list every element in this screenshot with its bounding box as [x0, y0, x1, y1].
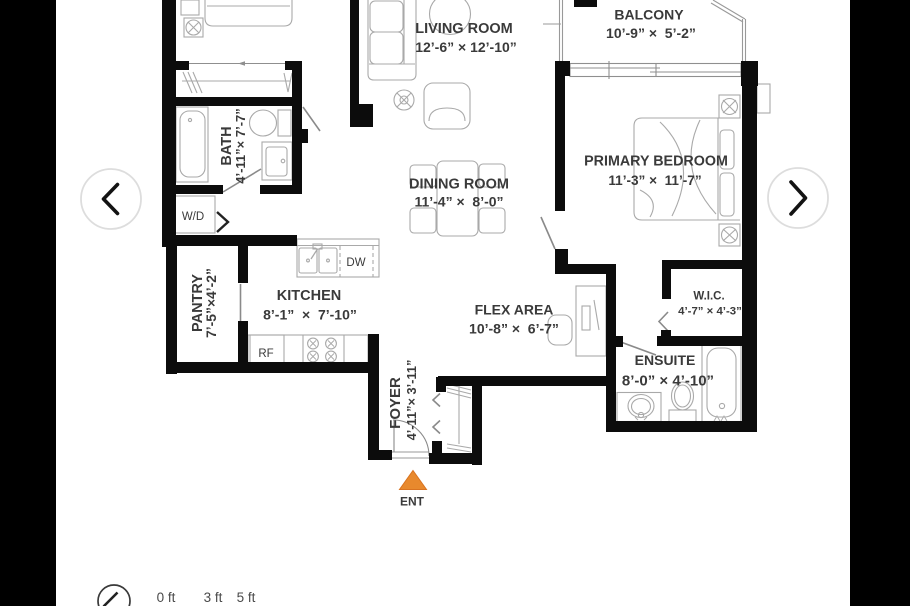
svg-text:FOYER: FOYER: [387, 377, 404, 429]
svg-text:7’-5”×4’-2”: 7’-5”×4’-2”: [203, 268, 219, 338]
svg-text:10’-8” × 6’-7”: 10’-8” × 6’-7”: [469, 321, 559, 337]
svg-text:ENT: ENT: [400, 495, 425, 509]
svg-text:DW: DW: [346, 257, 365, 269]
svg-text:BALCONY: BALCONY: [614, 7, 684, 23]
svg-text:4’-11”× 7’-7”: 4’-11”× 7’-7”: [233, 108, 248, 184]
svg-text:LIVING ROOM: LIVING ROOM: [415, 21, 512, 37]
svg-text:RF: RF: [258, 348, 273, 360]
svg-text:4’-7” × 4’-3”: 4’-7” × 4’-3”: [678, 306, 742, 318]
svg-text:12’-6” × 12’-10”: 12’-6” × 12’-10”: [415, 39, 517, 55]
svg-text:KITCHEN: KITCHEN: [277, 288, 341, 304]
svg-text:3 ft: 3 ft: [204, 590, 223, 605]
svg-text:5 ft: 5 ft: [237, 590, 256, 605]
svg-text:8’-0” × 4’-10”: 8’-0” × 4’-10”: [622, 373, 714, 390]
svg-text:FLEX AREA: FLEX AREA: [475, 302, 554, 318]
svg-text:10’-9” × 5’-2”: 10’-9” × 5’-2”: [606, 25, 696, 41]
svg-text:0 ft: 0 ft: [157, 590, 176, 605]
svg-text:W.I.C.: W.I.C.: [693, 291, 724, 303]
svg-text:11’-4” × 8’-0”: 11’-4” × 8’-0”: [414, 194, 503, 210]
svg-text:W/D: W/D: [182, 211, 204, 223]
svg-text:ENSUITE: ENSUITE: [635, 352, 696, 368]
svg-text:4’-11”× 3’-11”: 4’-11”× 3’-11”: [404, 360, 419, 441]
svg-text:PRIMARY BEDROOM: PRIMARY BEDROOM: [584, 154, 728, 170]
svg-text:8’-1” × 7’-10”: 8’-1” × 7’-10”: [263, 307, 357, 323]
svg-text:11’-3” × 11’-7”: 11’-3” × 11’-7”: [608, 173, 701, 188]
svg-text:DINING ROOM: DINING ROOM: [409, 177, 509, 193]
